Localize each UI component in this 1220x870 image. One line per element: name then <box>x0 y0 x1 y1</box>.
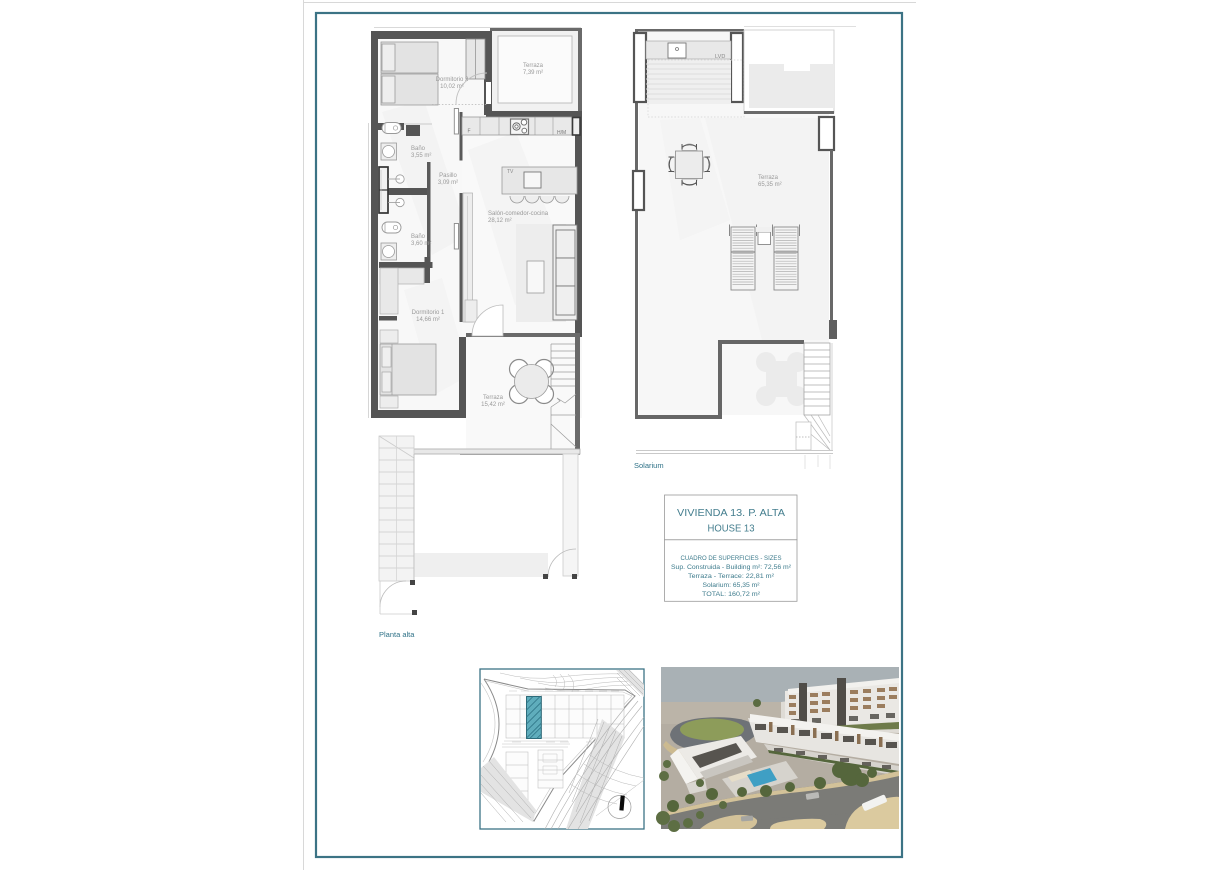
svg-text:10,02 m²: 10,02 m² <box>440 84 464 90</box>
svg-text:Sup. Construida - Building m: Sup. Construida - Building m²: 72,56 m² <box>671 564 791 571</box>
svg-text:VIVIENDA 13. P. ALTA: VIVIENDA 13. P. ALTA <box>677 508 785 519</box>
svg-text:Salón-comedor-cocina: Salón-comedor-cocina <box>488 211 549 217</box>
svg-text:TOTAL: 160,72 m²: TOTAL: 160,72 m² <box>702 591 760 598</box>
svg-text:Solarium: Solarium <box>634 461 664 470</box>
svg-text:Solarium: 65,35 m²: Solarium: 65,35 m² <box>703 582 760 589</box>
svg-text:LVD: LVD <box>715 54 725 60</box>
svg-text:Dormitorio 2: Dormitorio 2 <box>436 77 469 83</box>
svg-text:CUADRO DE SUPERFICIES - SIZE: CUADRO DE SUPERFICIES - SIZES <box>681 555 782 562</box>
svg-text:Terraza: Terraza <box>483 395 504 401</box>
svg-text:Dormitorio 1: Dormitorio 1 <box>412 310 445 316</box>
svg-text:HOUSE 13: HOUSE 13 <box>708 524 755 535</box>
svg-text:TV: TV <box>507 169 514 175</box>
svg-text:Terraza: Terraza <box>523 63 544 69</box>
svg-text:H/M: H/M <box>557 130 566 136</box>
svg-text:3,55 m²: 3,55 m² <box>411 153 431 159</box>
svg-text:Pasillo: Pasillo <box>439 173 457 179</box>
svg-text:Terraza - Terrace: 22,81 m²: Terraza - Terrace: 22,81 m² <box>688 573 774 580</box>
svg-text:3,60 m²: 3,60 m² <box>411 241 431 247</box>
svg-text:3,09 m²: 3,09 m² <box>438 180 458 186</box>
svg-text:F: F <box>468 129 471 135</box>
svg-text:7,39 m²: 7,39 m² <box>523 70 543 76</box>
svg-text:Terraza: Terraza <box>758 175 779 181</box>
svg-text:65,35 m²: 65,35 m² <box>758 182 782 188</box>
svg-text:28,12 m²: 28,12 m² <box>488 218 512 224</box>
svg-text:15,42 m²: 15,42 m² <box>481 402 505 408</box>
svg-text:Baño: Baño <box>411 146 426 152</box>
svg-text:14,66 m²: 14,66 m² <box>416 317 440 323</box>
svg-text:Planta alta: Planta alta <box>379 630 415 639</box>
svg-text:Baño: Baño <box>411 234 426 240</box>
